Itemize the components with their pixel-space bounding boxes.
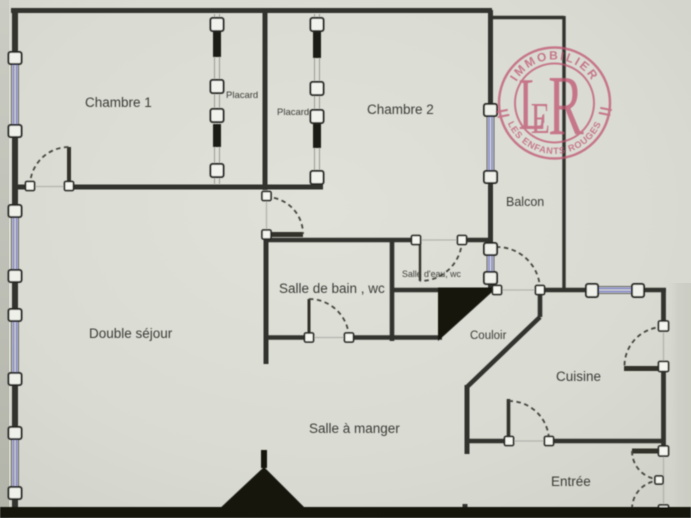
svg-text:Cuisine: Cuisine xyxy=(556,369,601,384)
svg-text:Placard: Placard xyxy=(226,90,258,101)
svg-text:Salle à manger: Salle à manger xyxy=(309,421,400,436)
svg-text:Chambre 2: Chambre 2 xyxy=(367,102,434,117)
svg-text:Double séjour: Double séjour xyxy=(89,326,173,341)
svg-text:Salle de bain , wc: Salle de bain , wc xyxy=(279,281,385,296)
svg-text:Couloir: Couloir xyxy=(470,330,507,342)
svg-text:Placard: Placard xyxy=(277,107,309,118)
svg-text:Balcon: Balcon xyxy=(506,195,544,209)
svg-text:R: R xyxy=(548,58,584,153)
svg-text:Chambre 1: Chambre 1 xyxy=(85,95,152,110)
svg-text:Salle d'eau, wc: Salle d'eau, wc xyxy=(402,269,461,279)
svg-text:E: E xyxy=(531,95,550,143)
svg-text:Entrée: Entrée xyxy=(551,474,591,489)
